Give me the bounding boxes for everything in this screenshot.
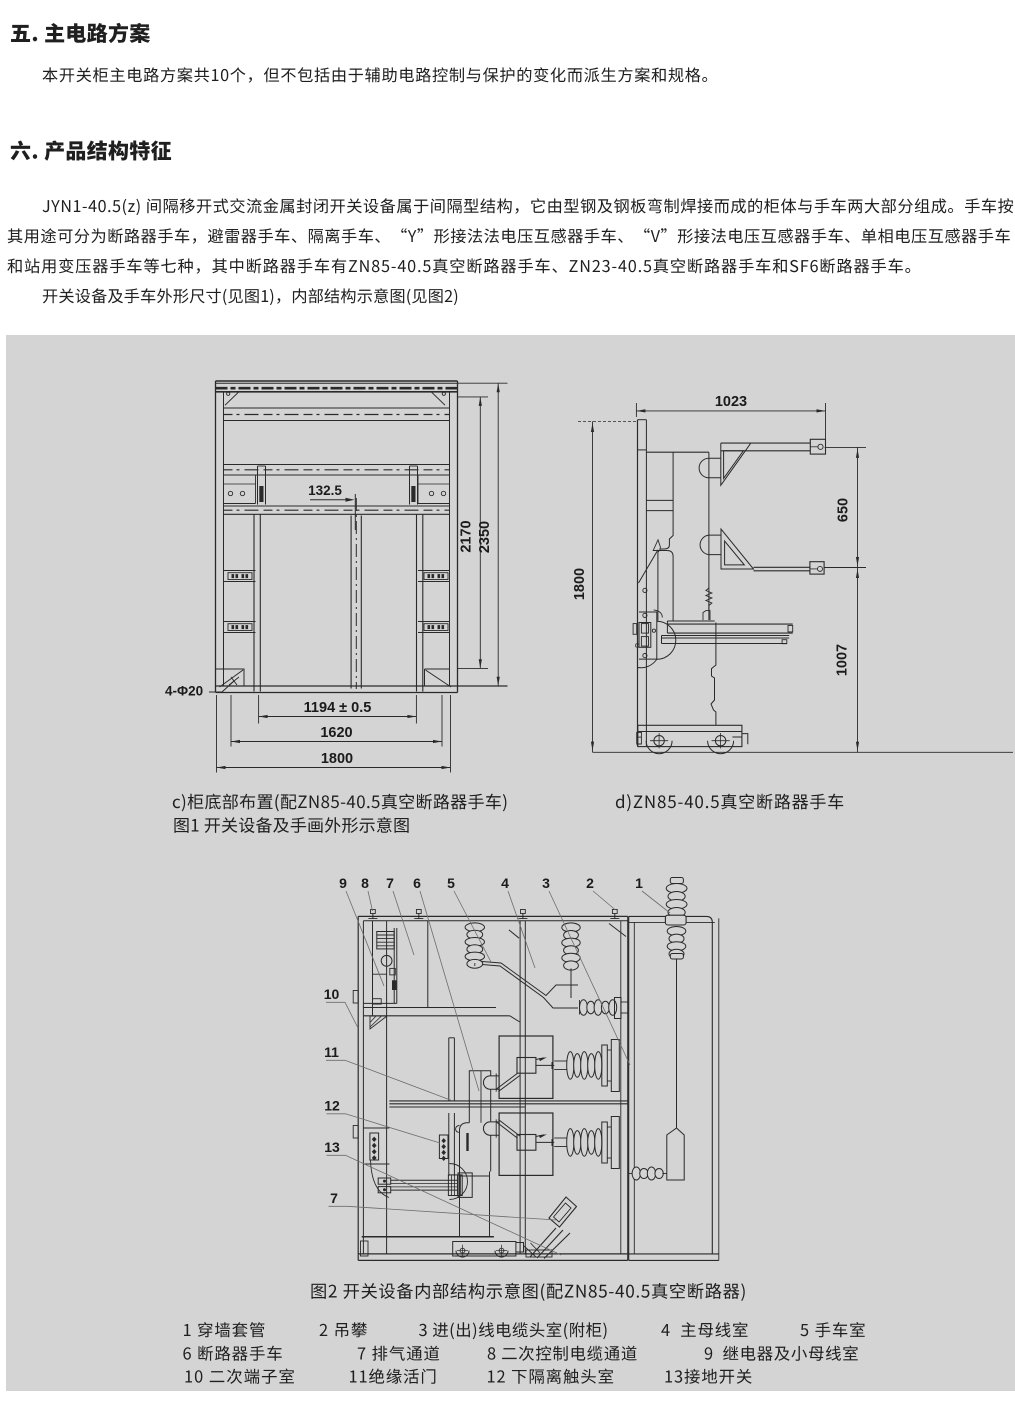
svg-text:10: 10 <box>324 986 340 1002</box>
svg-text:1194 ± 0.5: 1194 ± 0.5 <box>304 700 372 716</box>
svg-text:1620: 1620 <box>320 725 352 741</box>
svg-text:1007: 1007 <box>835 644 851 676</box>
svg-text:12: 12 <box>324 1098 340 1114</box>
svg-text:9: 9 <box>339 875 347 891</box>
svg-text:2170: 2170 <box>459 520 475 552</box>
svg-text:650: 650 <box>836 498 852 522</box>
svg-text:2: 2 <box>586 875 594 891</box>
svg-text:6: 6 <box>413 875 421 891</box>
svg-text:8: 8 <box>361 875 369 891</box>
svg-text:5: 5 <box>447 875 455 891</box>
svg-text:1800: 1800 <box>572 568 588 600</box>
svg-text:13: 13 <box>324 1139 340 1155</box>
svg-text:4-Φ20: 4-Φ20 <box>165 684 203 699</box>
svg-text:1023: 1023 <box>715 394 747 410</box>
svg-text:4: 4 <box>501 875 509 891</box>
svg-text:11: 11 <box>324 1044 339 1060</box>
svg-text:2350: 2350 <box>477 521 493 553</box>
svg-text:1800: 1800 <box>321 751 353 767</box>
svg-text:7: 7 <box>386 875 394 891</box>
svg-text:7: 7 <box>330 1190 338 1206</box>
svg-text:132.5: 132.5 <box>308 483 342 498</box>
svg-text:3: 3 <box>542 875 550 891</box>
svg-text:1: 1 <box>635 875 643 891</box>
